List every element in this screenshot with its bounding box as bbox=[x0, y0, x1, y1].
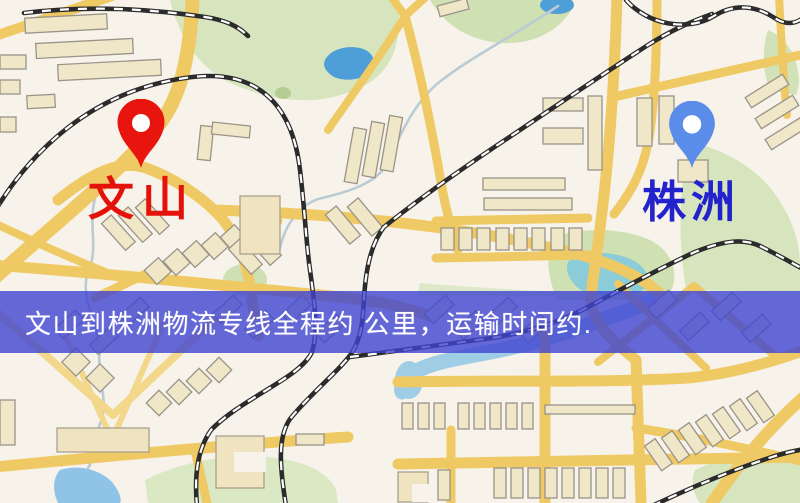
banner-text: 文山到株洲物流专线全程约 公里，运输时间约. bbox=[25, 304, 592, 341]
info-banner: 文山到株洲物流专线全程约 公里，运输时间约. bbox=[0, 291, 800, 353]
map-canvas bbox=[0, 0, 800, 503]
destination-pin-icon bbox=[666, 101, 718, 171]
destination-label: 株洲 bbox=[642, 181, 740, 225]
map-container: 文山 株洲 文山到株洲物流专线全程约 公里，运输时间约. bbox=[0, 0, 800, 503]
origin-pin-icon bbox=[115, 99, 167, 171]
origin-label: 文山 bbox=[88, 176, 196, 222]
